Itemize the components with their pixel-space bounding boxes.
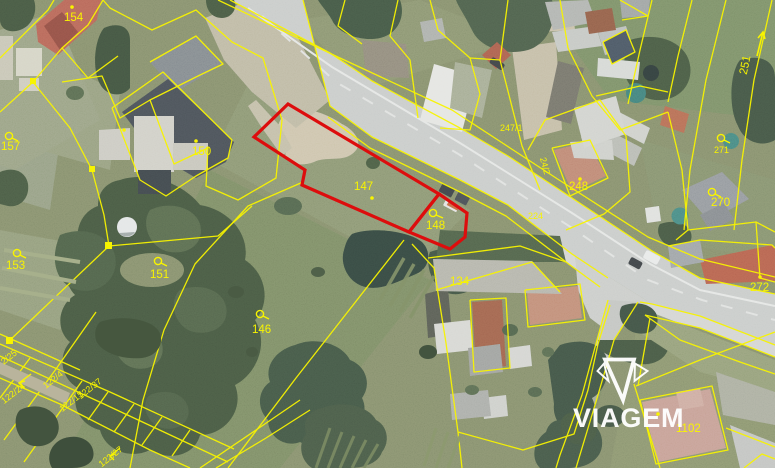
svg-text:270: 270 xyxy=(711,197,730,209)
svg-text:248: 248 xyxy=(569,181,588,193)
svg-text:146: 146 xyxy=(252,324,271,336)
svg-text:154: 154 xyxy=(64,12,84,24)
svg-text:271: 271 xyxy=(714,145,729,155)
svg-text:134: 134 xyxy=(450,276,470,288)
svg-text:VIAGEM: VIAGEM xyxy=(573,403,684,433)
svg-text:272: 272 xyxy=(750,282,769,294)
svg-text:151: 151 xyxy=(150,269,169,281)
svg-text:147: 147 xyxy=(354,181,373,193)
svg-text:157: 157 xyxy=(1,141,20,153)
svg-text:247/1: 247/1 xyxy=(500,123,523,133)
svg-text:150: 150 xyxy=(192,146,211,158)
svg-text:148: 148 xyxy=(426,220,445,232)
svg-text:153: 153 xyxy=(6,260,25,272)
svg-text:224: 224 xyxy=(528,211,543,221)
